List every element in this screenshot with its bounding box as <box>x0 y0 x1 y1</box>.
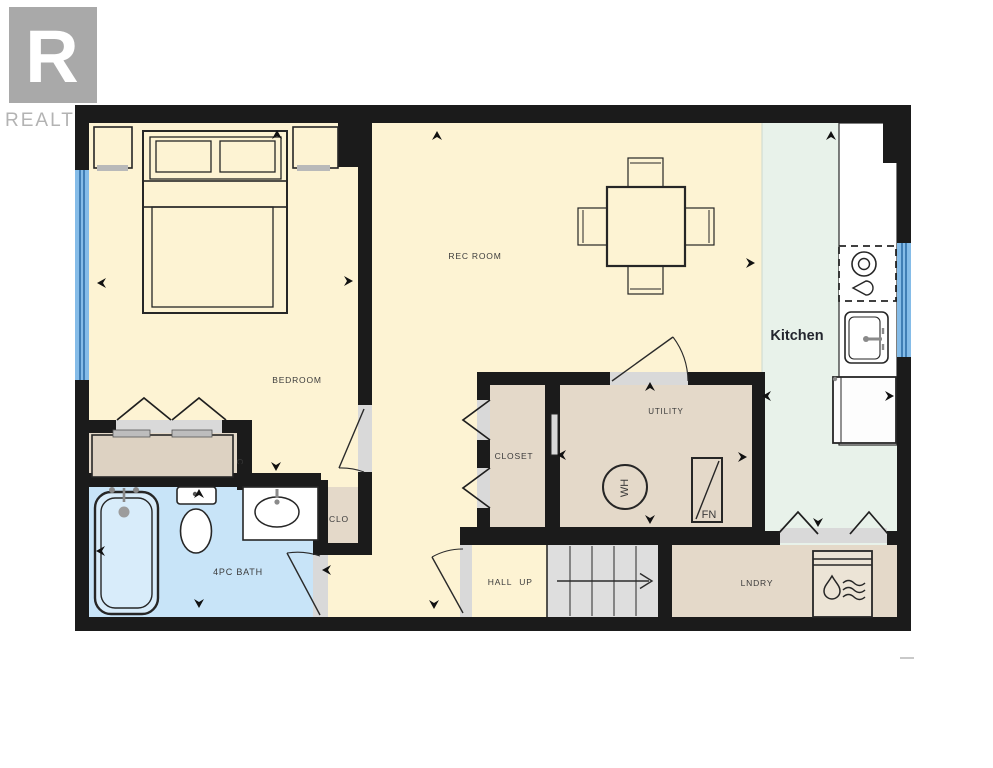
wall-segment <box>658 545 672 617</box>
bedroom-label: BEDROOM <box>272 375 322 385</box>
fridge-hinge-dot <box>833 377 837 381</box>
furnace-label: FN <box>702 509 717 521</box>
bed-outline <box>143 131 287 313</box>
floor-plan-page: R REALTOR ® <box>0 0 993 768</box>
clo-label: CLO <box>329 514 349 524</box>
laundry-bifold-sill <box>780 528 887 543</box>
faucet-dot <box>863 336 869 342</box>
dresser-handle <box>113 430 150 437</box>
wall-segment <box>545 385 560 543</box>
nightstand-shelf <box>97 165 128 171</box>
dresser-handle <box>172 430 212 437</box>
kitchen-label: Kitchen <box>770 328 823 344</box>
floor-plan-svg: R REALTOR ® <box>0 0 993 768</box>
utility-closet-door-leaf <box>551 414 558 455</box>
bathtub-icon <box>95 487 158 614</box>
wall-segment <box>75 105 911 123</box>
nightstand-icon <box>293 127 338 168</box>
wall-segment <box>887 531 897 545</box>
wall-segment <box>75 380 89 631</box>
bedroom-door-opening <box>358 405 372 472</box>
closet-bifold-sill-top <box>477 400 490 440</box>
bathroom-door-opening <box>313 555 328 617</box>
utility-label: UTILITY <box>648 407 683 416</box>
tub-tap-icon <box>133 487 139 493</box>
kitchen-sink-icon <box>845 312 888 363</box>
washer-icon <box>813 551 872 617</box>
closet-label: CLOSET <box>495 451 534 461</box>
tub-drain-icon <box>119 507 130 518</box>
stove-outline <box>839 246 896 301</box>
hall-label: HALL <box>488 577 512 587</box>
wall-segment <box>477 440 490 468</box>
closet-bifold-sill-bottom <box>477 468 490 508</box>
chair-icon <box>578 208 607 245</box>
dresser-icon <box>92 430 233 477</box>
wall-segment <box>460 527 765 545</box>
wall-segment <box>338 113 372 167</box>
wall-segment <box>313 543 372 555</box>
tub-tap-icon <box>109 487 115 493</box>
fridge-outline <box>833 377 896 443</box>
chair-icon <box>628 266 663 294</box>
vanity-outline <box>243 487 318 540</box>
vanity-faucet-dot <box>274 499 279 504</box>
wall-segment <box>75 617 911 631</box>
kitchen-window <box>897 243 911 357</box>
water-heater-label: WH <box>619 479 631 497</box>
wall-segment <box>883 105 911 163</box>
corridor-floor <box>313 555 460 617</box>
stove-icon <box>839 246 896 301</box>
nightstand-icon <box>94 127 132 168</box>
dresser-outline <box>92 435 233 477</box>
up-label: UP <box>519 577 532 587</box>
wall-segment <box>75 105 89 170</box>
bed-icon <box>143 131 287 313</box>
wall-segment <box>358 472 372 555</box>
wall-segment <box>477 385 490 400</box>
table-icon <box>607 187 685 266</box>
hall-door-opening <box>460 545 472 617</box>
vanity-sink-icon <box>243 487 318 540</box>
rec-room-label: REC ROOM <box>448 251 501 261</box>
laundry-label: LNDRY <box>741 578 774 588</box>
bedroom-window <box>75 170 89 380</box>
realtor-logo-r-icon: R <box>25 15 78 98</box>
wall-segment <box>688 372 765 385</box>
wall-segment <box>897 357 911 631</box>
wall-segment <box>477 372 610 385</box>
toilet-bowl <box>181 509 212 553</box>
bathroom-label: 4PC BATH <box>213 567 263 577</box>
chair-icon <box>685 208 714 245</box>
wall-segment <box>752 385 765 543</box>
nightstand-shelf <box>297 165 330 171</box>
fridge-icon <box>833 377 896 443</box>
c-closet-label: C <box>235 459 244 466</box>
